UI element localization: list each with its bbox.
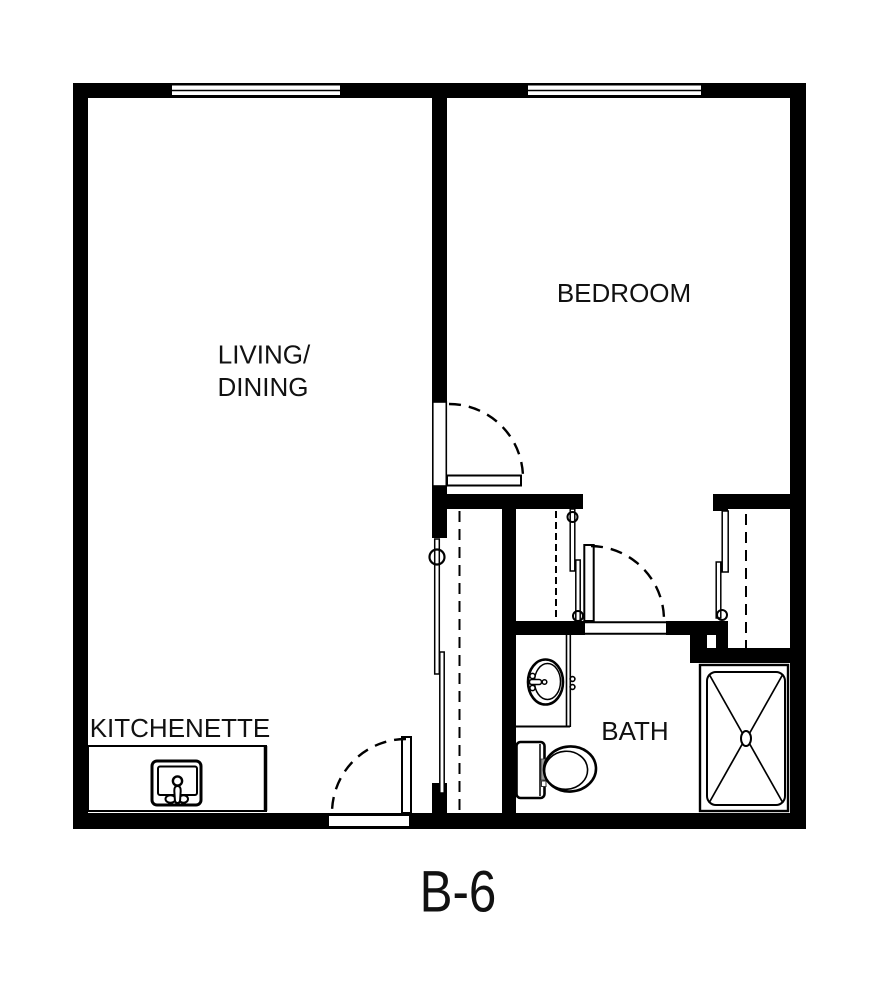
svg-text:B-6: B-6 [420, 860, 497, 925]
svg-text:DINING: DINING [218, 372, 309, 402]
svg-text:BEDROOM: BEDROOM [557, 278, 691, 308]
svg-text:BATH: BATH [601, 716, 668, 746]
svg-text:LIVING/: LIVING/ [218, 340, 311, 370]
svg-text:KITCHENETTE: KITCHENETTE [90, 713, 271, 743]
